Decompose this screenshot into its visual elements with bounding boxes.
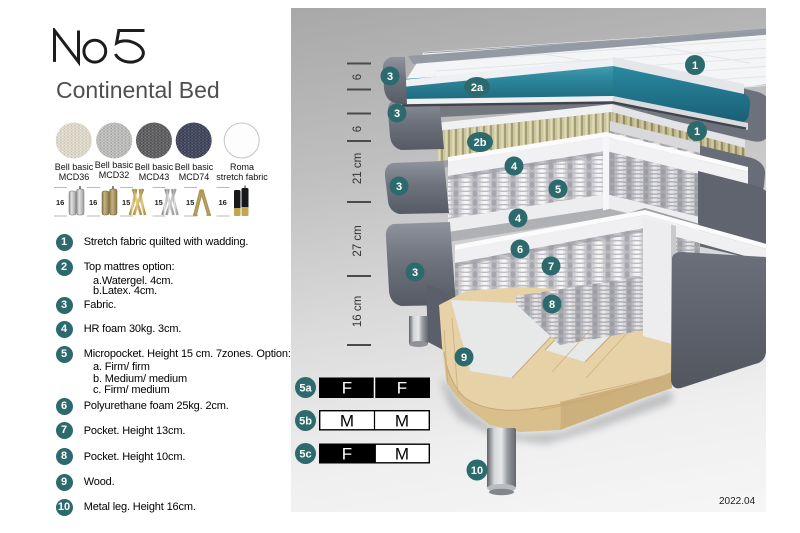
svg-text:15: 15	[186, 198, 194, 207]
svg-text:9: 9	[461, 352, 467, 364]
svg-text:7: 7	[548, 261, 554, 273]
svg-text:F: F	[342, 445, 352, 464]
svg-text:6: 6	[517, 244, 523, 256]
svg-text:F: F	[397, 379, 407, 398]
svg-text:1: 1	[694, 126, 700, 138]
svg-text:5a: 5a	[299, 383, 312, 395]
svg-text:16: 16	[89, 198, 97, 207]
svg-text:5: 5	[555, 184, 561, 196]
svg-text:16: 16	[56, 198, 64, 207]
svg-text:3: 3	[412, 267, 418, 279]
svg-text:2022.04: 2022.04	[719, 496, 756, 507]
svg-text:16: 16	[219, 198, 227, 207]
svg-text:2b: 2b	[474, 137, 487, 149]
svg-text:3: 3	[394, 108, 400, 120]
svg-text:27 cm: 27 cm	[352, 225, 364, 256]
svg-text:6: 6	[352, 126, 364, 132]
svg-text:15: 15	[155, 198, 163, 207]
svg-text:21 cm: 21 cm	[352, 153, 364, 184]
svg-text:3: 3	[387, 71, 393, 83]
svg-text:6: 6	[352, 74, 364, 80]
svg-text:4: 4	[515, 213, 522, 225]
svg-text:M: M	[395, 445, 409, 464]
svg-text:5b: 5b	[299, 416, 312, 428]
svg-text:3: 3	[396, 181, 402, 193]
svg-text:16 cm: 16 cm	[352, 296, 364, 327]
svg-text:15: 15	[122, 198, 130, 207]
svg-text:8: 8	[549, 299, 555, 311]
svg-text:F: F	[342, 379, 352, 398]
svg-text:4: 4	[511, 161, 518, 173]
svg-text:M: M	[395, 412, 409, 431]
svg-text:1: 1	[692, 60, 698, 72]
svg-text:10: 10	[471, 465, 483, 477]
svg-text:M: M	[340, 412, 354, 431]
svg-text:2a: 2a	[471, 82, 484, 94]
svg-text:5c: 5c	[299, 449, 311, 461]
